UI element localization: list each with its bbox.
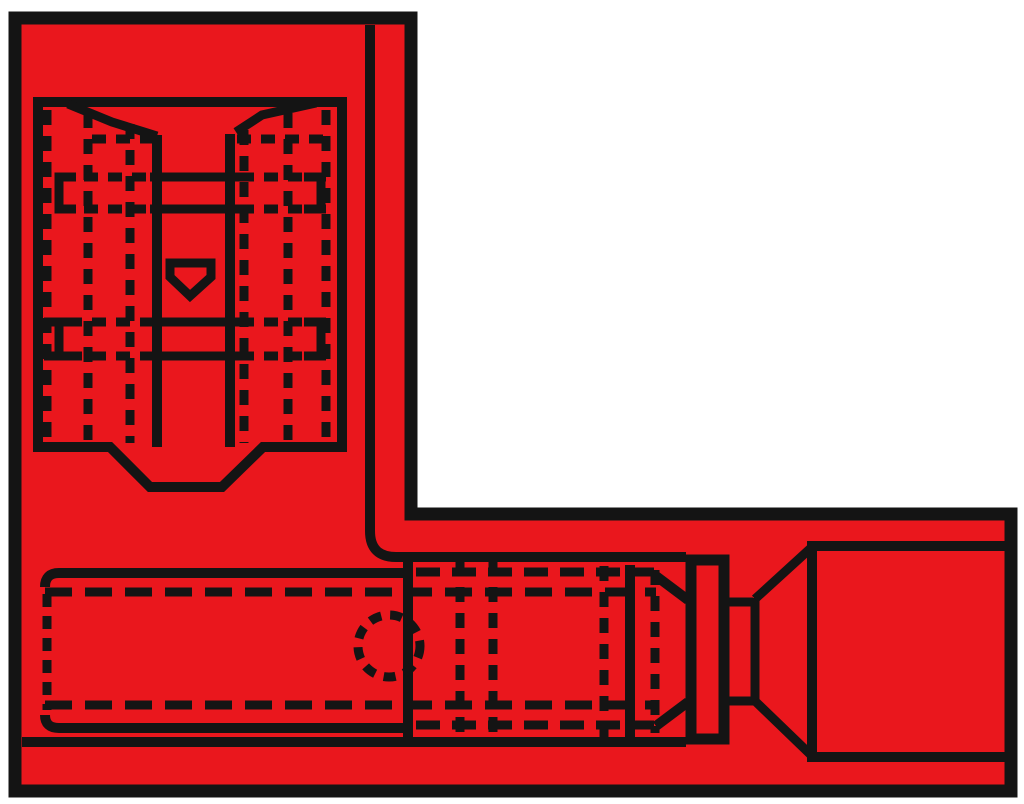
body-outline: [15, 18, 1011, 791]
diagram-stage: [0, 0, 1024, 804]
sleeve-collar: [691, 560, 724, 739]
terminal-diagram: [0, 0, 1024, 804]
